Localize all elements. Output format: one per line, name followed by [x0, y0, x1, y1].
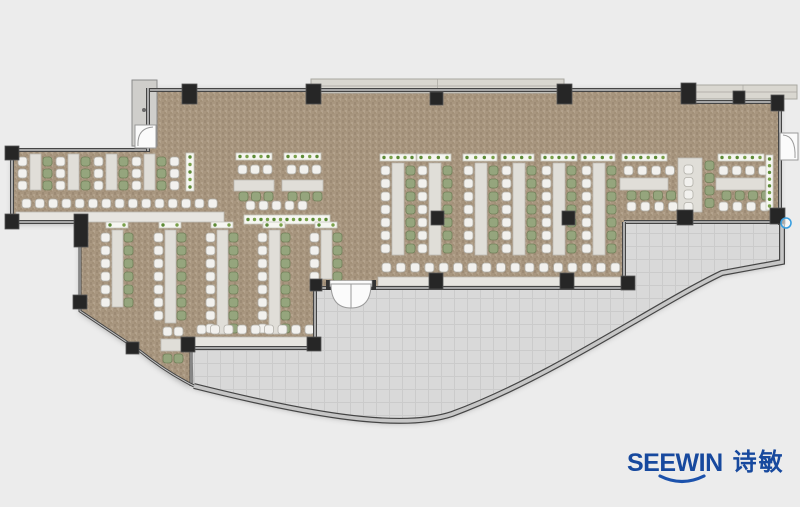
chair-white — [684, 165, 693, 174]
chair-white — [464, 231, 473, 240]
chair-white — [154, 246, 163, 255]
desk-table — [30, 154, 41, 190]
chair-white — [502, 205, 511, 214]
chair-white — [298, 201, 307, 210]
chair-white — [381, 179, 390, 188]
chair-white — [381, 205, 390, 214]
chair-white — [265, 325, 274, 334]
planter-plant — [265, 223, 268, 226]
chair-white — [312, 165, 321, 174]
planter-plant — [647, 156, 650, 159]
chair-green — [527, 218, 536, 227]
chair-white — [310, 233, 319, 242]
chair-white — [381, 192, 390, 201]
chair-green — [177, 298, 186, 307]
chair-green — [527, 166, 536, 175]
desk-table — [269, 230, 280, 334]
chair-white — [287, 165, 296, 174]
chair-white — [482, 263, 491, 272]
chair-green — [124, 285, 133, 294]
counter-table — [194, 337, 316, 347]
chair-white — [668, 202, 677, 211]
chair-white — [525, 263, 534, 272]
planter-plant — [188, 155, 191, 158]
planter-plant — [188, 170, 191, 173]
chair-green — [443, 179, 452, 188]
planter-plant — [768, 164, 771, 167]
chair-white — [502, 166, 511, 175]
chair-white — [292, 325, 301, 334]
chair-green — [177, 233, 186, 242]
chair-green — [313, 192, 322, 201]
planter-plant — [317, 223, 320, 226]
planter-plant — [213, 223, 216, 226]
chair-green — [81, 181, 90, 190]
chair-green — [229, 285, 238, 294]
chair-white — [418, 218, 427, 227]
chair-white — [258, 259, 267, 268]
chair-green — [301, 192, 310, 201]
chair-white — [258, 298, 267, 307]
chair-white — [206, 272, 215, 281]
planter-plant — [758, 156, 761, 159]
chair-green — [406, 218, 415, 227]
brand-wordmark-wrap: SEEWIN — [627, 451, 723, 476]
chair-white — [597, 263, 606, 272]
planter-plant — [720, 156, 723, 159]
planter-plant — [318, 218, 321, 221]
chair-green — [333, 259, 342, 268]
planter-plant — [259, 155, 262, 158]
chair-white — [142, 199, 151, 208]
chair-white — [128, 199, 137, 208]
planter-plant — [292, 218, 295, 221]
chair-white — [732, 166, 741, 175]
chair-green — [43, 157, 52, 166]
desk-table — [716, 178, 765, 190]
chair-white — [539, 263, 548, 272]
planter-plant — [389, 156, 392, 159]
planter-plant — [253, 218, 256, 221]
chair-green — [567, 231, 576, 240]
chair-white — [154, 311, 163, 320]
chair-green — [567, 179, 576, 188]
planter-plant — [632, 156, 635, 159]
chair-white — [652, 166, 661, 175]
desk-table — [593, 163, 605, 255]
chair-white — [49, 199, 58, 208]
planter-plant — [639, 156, 642, 159]
planter-plant — [301, 155, 304, 158]
chair-green — [527, 192, 536, 201]
brand-logo: SEEWIN 诗敏 — [627, 451, 785, 476]
chair-green — [239, 192, 248, 201]
chair-white — [381, 218, 390, 227]
planter-plant — [520, 156, 523, 159]
chair-green — [281, 272, 290, 281]
planter-plant — [315, 155, 318, 158]
planter-plant — [161, 223, 164, 226]
planter-plant — [331, 223, 334, 226]
chair-white — [154, 298, 163, 307]
desk-table — [553, 163, 565, 255]
chair-green — [653, 191, 662, 200]
chair-white — [502, 179, 511, 188]
desk-table — [144, 154, 155, 190]
planter-plant — [654, 156, 657, 159]
planter-plant — [396, 156, 399, 159]
planter-plant — [512, 156, 515, 159]
planter-plant — [743, 156, 746, 159]
chair-white — [251, 325, 260, 334]
planter-plant — [324, 218, 327, 221]
chair-green — [705, 174, 714, 183]
chair-white — [174, 327, 183, 336]
planter-plant — [528, 156, 531, 159]
brand-wordmark: SEEWIN — [627, 449, 723, 477]
planter-plant — [410, 156, 413, 159]
chair-white — [745, 166, 754, 175]
planter-plant — [550, 156, 553, 159]
chair-white — [719, 202, 728, 211]
chair-green — [406, 205, 415, 214]
chair-green — [229, 298, 238, 307]
chair-white — [94, 169, 103, 178]
chair-white — [502, 231, 511, 240]
planter-plant — [445, 156, 448, 159]
planter-plant — [298, 218, 301, 221]
chair-white — [56, 169, 65, 178]
chair-white — [18, 181, 27, 190]
planter-plant — [624, 156, 627, 159]
chair-green — [527, 205, 536, 214]
chair-green — [163, 354, 172, 363]
chair-white — [502, 192, 511, 201]
chair-white — [132, 169, 141, 178]
column — [74, 214, 88, 247]
planter-plant — [108, 223, 111, 226]
chair-white — [638, 166, 647, 175]
column — [621, 276, 635, 290]
chair-green — [607, 218, 616, 227]
chair-white — [511, 263, 520, 272]
chair-white — [418, 205, 427, 214]
chair-green — [406, 244, 415, 253]
chair-white — [464, 192, 473, 201]
chair-green — [640, 191, 649, 200]
chair-green — [406, 179, 415, 188]
chair-white — [197, 325, 206, 334]
column — [681, 83, 696, 104]
chair-white — [94, 157, 103, 166]
desk-table — [282, 180, 323, 191]
chair-white — [155, 199, 164, 208]
chair-green — [124, 246, 133, 255]
chair-white — [132, 157, 141, 166]
chair-white — [206, 298, 215, 307]
chair-white — [101, 233, 110, 242]
chair-white — [101, 272, 110, 281]
chair-white — [310, 259, 319, 268]
chair-green — [119, 169, 128, 178]
planter-plant — [768, 177, 771, 180]
chair-green — [527, 244, 536, 253]
chair-white — [719, 166, 728, 175]
chair-white — [101, 259, 110, 268]
chair-white — [464, 205, 473, 214]
planter-box — [766, 155, 773, 210]
column — [677, 210, 693, 225]
chair-white — [258, 246, 267, 255]
chair-white — [502, 244, 511, 253]
planter-plant — [609, 156, 612, 159]
chair-white — [542, 205, 551, 214]
planter-plant — [308, 155, 311, 158]
chair-white — [206, 285, 215, 294]
chair-white — [582, 231, 591, 240]
planter-box — [622, 154, 667, 161]
chair-white — [582, 263, 591, 272]
chair-white — [258, 233, 267, 242]
planter-plant — [768, 171, 771, 174]
column — [307, 337, 321, 351]
chair-white — [582, 179, 591, 188]
chair-green — [705, 199, 714, 208]
chair-white — [381, 231, 390, 240]
chair-white — [496, 263, 505, 272]
planter-plant — [751, 156, 754, 159]
chair-green — [157, 169, 166, 178]
chair-white — [94, 181, 103, 190]
brand-name-chinese: 诗敏 — [733, 451, 785, 475]
chair-green — [174, 354, 183, 363]
chair-white — [582, 205, 591, 214]
chair-green — [627, 191, 636, 200]
planter-plant — [571, 156, 574, 159]
planter-plant — [122, 223, 125, 226]
desk-table — [161, 339, 184, 351]
chair-green — [81, 157, 90, 166]
chair-white — [582, 166, 591, 175]
planter-plant — [285, 218, 288, 221]
chair-green — [43, 169, 52, 178]
chair-green — [748, 191, 757, 200]
planter-plant — [305, 218, 308, 221]
chair-white — [206, 233, 215, 242]
planter-plant — [437, 156, 440, 159]
chair-white — [542, 179, 551, 188]
planter-plant — [246, 218, 249, 221]
chair-green — [735, 191, 744, 200]
planter-plant — [768, 198, 771, 201]
chair-white — [168, 199, 177, 208]
planter-plant — [768, 157, 771, 160]
panel-knob — [142, 108, 146, 112]
column — [771, 95, 784, 111]
chair-green — [177, 285, 186, 294]
planter-plant — [465, 156, 468, 159]
chair-white — [624, 166, 633, 175]
chair-white — [246, 201, 255, 210]
column — [560, 273, 574, 289]
column — [431, 211, 444, 225]
planter-plant — [266, 155, 269, 158]
planter-plant — [279, 223, 282, 226]
chair-white — [62, 199, 71, 208]
chair-green — [722, 191, 731, 200]
chair-green — [281, 285, 290, 294]
chair-white — [554, 263, 563, 272]
chair-white — [468, 263, 477, 272]
chair-green — [177, 311, 186, 320]
chair-white — [425, 263, 434, 272]
planter-plant — [279, 218, 282, 221]
chair-green — [527, 179, 536, 188]
planter-plant — [259, 218, 262, 221]
chair-green — [489, 218, 498, 227]
chair-white — [154, 259, 163, 268]
chair-white — [464, 166, 473, 175]
chair-green — [281, 259, 290, 268]
chair-green — [443, 166, 452, 175]
chair-white — [627, 202, 636, 211]
chair-white — [251, 165, 260, 174]
chair-green — [406, 192, 415, 201]
chair-white — [310, 246, 319, 255]
planter-plant — [474, 156, 477, 159]
chair-green — [281, 298, 290, 307]
planter-plant — [592, 156, 595, 159]
chair-green — [252, 192, 261, 201]
chair-green — [333, 233, 342, 242]
column — [182, 84, 197, 104]
column — [429, 273, 443, 289]
planter-plant — [564, 156, 567, 159]
desk-table — [217, 230, 228, 334]
column — [73, 295, 87, 309]
desk-table — [475, 163, 487, 255]
chair-green — [119, 157, 128, 166]
chair-white — [224, 325, 233, 334]
planter-plant — [245, 155, 248, 158]
planter-plant — [768, 191, 771, 194]
chair-white — [101, 285, 110, 294]
chair-white — [542, 192, 551, 201]
chair-green — [281, 246, 290, 255]
counter-table — [378, 277, 626, 286]
chair-white — [285, 201, 294, 210]
column — [733, 91, 745, 104]
chair-white — [170, 157, 179, 166]
chair-green — [607, 179, 616, 188]
planter-plant — [419, 156, 422, 159]
chair-green — [229, 233, 238, 242]
chair-white — [582, 218, 591, 227]
chair-white — [22, 199, 31, 208]
chair-white — [101, 246, 110, 255]
chair-green — [607, 231, 616, 240]
chair-white — [411, 263, 420, 272]
chair-white — [665, 166, 674, 175]
chair-white — [258, 285, 267, 294]
planter-plant — [483, 156, 486, 159]
chair-white — [418, 244, 427, 253]
column — [181, 337, 195, 352]
chair-green — [443, 231, 452, 240]
planter-plant — [175, 223, 178, 226]
chair-green — [527, 231, 536, 240]
chair-white — [439, 263, 448, 272]
chair-green — [81, 169, 90, 178]
planter-plant — [543, 156, 546, 159]
planter-plant — [503, 156, 506, 159]
chair-green — [607, 205, 616, 214]
chair-white — [238, 325, 247, 334]
planter-plant — [728, 156, 731, 159]
chair-green — [489, 231, 498, 240]
chair-green — [443, 192, 452, 201]
chair-white — [258, 272, 267, 281]
chair-white — [641, 202, 650, 211]
chair-green — [124, 298, 133, 307]
chair-green — [124, 259, 133, 268]
planter-plant — [188, 185, 191, 188]
chair-white — [747, 202, 756, 211]
chair-green — [489, 179, 498, 188]
column — [126, 342, 139, 354]
chair-white — [300, 165, 309, 174]
chair-green — [124, 233, 133, 242]
chair-green — [281, 233, 290, 242]
chair-white — [56, 157, 65, 166]
planter-plant — [661, 156, 664, 159]
chair-green — [43, 181, 52, 190]
chair-white — [258, 311, 267, 320]
planter-plant — [272, 218, 275, 221]
chair-green — [489, 192, 498, 201]
cad-marker — [781, 218, 791, 228]
chair-green — [607, 244, 616, 253]
chair-green — [157, 157, 166, 166]
chair-white — [381, 166, 390, 175]
chair-white — [382, 263, 391, 272]
planter-plant — [601, 156, 604, 159]
planter-plant — [557, 156, 560, 159]
chair-white — [182, 199, 191, 208]
chair-white — [259, 201, 268, 210]
desk-table — [165, 230, 176, 323]
chair-green — [607, 166, 616, 175]
desk-table — [513, 163, 525, 255]
chair-white — [163, 327, 172, 336]
desk-table — [429, 163, 441, 255]
chair-white — [418, 231, 427, 240]
planter-plant — [286, 155, 289, 158]
planter-plant — [266, 218, 269, 221]
column — [306, 84, 321, 104]
chair-green — [264, 192, 273, 201]
chair-white — [206, 246, 215, 255]
desk-table — [321, 230, 332, 279]
chair-white — [396, 263, 405, 272]
chair-white — [278, 325, 287, 334]
chair-green — [229, 272, 238, 281]
chair-white — [464, 179, 473, 188]
chair-white — [454, 263, 463, 272]
chair-white — [154, 285, 163, 294]
chair-white — [611, 263, 620, 272]
chair-white — [542, 231, 551, 240]
